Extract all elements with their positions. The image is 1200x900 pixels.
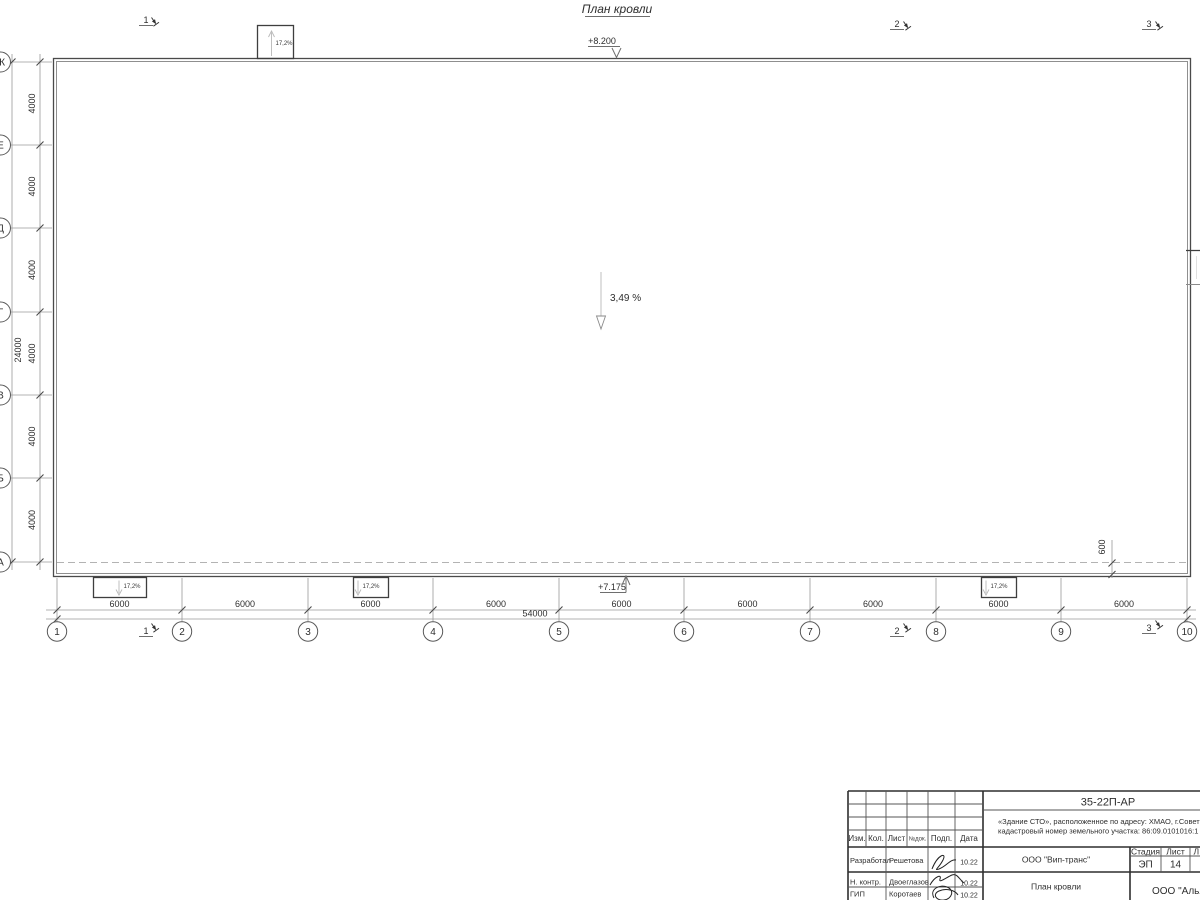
svg-text:План кровли: План кровли bbox=[1031, 882, 1081, 892]
svg-text:35-22П-АР: 35-22П-АР bbox=[1081, 797, 1135, 809]
svg-text:1: 1 bbox=[54, 627, 60, 638]
svg-text:6000: 6000 bbox=[235, 599, 255, 609]
svg-text:10.22: 10.22 bbox=[960, 893, 978, 900]
svg-text:4000: 4000 bbox=[27, 93, 37, 113]
svg-text:Коротаев: Коротаев bbox=[889, 890, 921, 899]
section-mark-2-bottom: 2 bbox=[890, 622, 911, 637]
titleblock-signer-row-3: ГИП Коротаев 10.22 bbox=[850, 886, 978, 900]
svg-text:ГИП: ГИП bbox=[850, 890, 865, 899]
svg-text:4: 4 bbox=[430, 627, 436, 638]
svg-text:600: 600 bbox=[1097, 539, 1107, 554]
svg-text:4000: 4000 bbox=[27, 176, 37, 196]
svg-text:«Здание СТО», расположенное по: «Здание СТО», расположенное по адресу: Х… bbox=[998, 817, 1200, 826]
section-mark-3-bottom: 3 bbox=[1142, 619, 1163, 634]
svg-text:2: 2 bbox=[179, 627, 185, 638]
svg-text:17,2%: 17,2% bbox=[363, 584, 381, 590]
svg-text:Лист: Лист bbox=[1166, 847, 1185, 857]
titleblock-org-cell: ООО "Вип-транс" bbox=[1022, 855, 1090, 865]
section-mark-2-top: 2 bbox=[890, 19, 911, 30]
svg-text:2: 2 bbox=[894, 626, 899, 636]
svg-text:Ж: Ж bbox=[0, 58, 6, 69]
column-dimension-lines bbox=[46, 610, 1196, 619]
titleblock-project-description: «Здание СТО», расположенное по адресу: Х… bbox=[998, 817, 1200, 836]
titleblock-doc-code: 35-22П-АР bbox=[1081, 797, 1135, 809]
svg-text:6: 6 bbox=[681, 627, 687, 638]
svg-text:7: 7 bbox=[807, 627, 813, 638]
signature-2 bbox=[930, 875, 964, 885]
svg-text:1: 1 bbox=[143, 15, 148, 25]
svg-text:4000: 4000 bbox=[27, 343, 37, 363]
svg-text:+7.175: +7.175 bbox=[598, 582, 626, 592]
titleblock-header-row: Изм. Кол. Лист №док. Подп. Дата bbox=[848, 834, 978, 843]
titleblock-org2-cell: ООО "Алья bbox=[1152, 886, 1200, 897]
svg-text:2: 2 bbox=[894, 19, 899, 29]
svg-text:14: 14 bbox=[1170, 860, 1182, 871]
svg-text:10.22: 10.22 bbox=[960, 881, 978, 888]
svg-text:Стадия: Стадия bbox=[1131, 847, 1160, 857]
elevation-mark-roof-low: +7.175 bbox=[598, 576, 630, 593]
svg-text:6000: 6000 bbox=[1114, 599, 1134, 609]
canopy-bottom-2: 17,2% bbox=[354, 578, 389, 598]
svg-text:Подп.: Подп. bbox=[931, 834, 952, 843]
svg-text:Л: Л bbox=[1194, 847, 1200, 857]
svg-text:В: В bbox=[0, 391, 4, 402]
column-total-dimension-label: 54000 bbox=[522, 609, 547, 619]
svg-text:17,2%: 17,2% bbox=[991, 584, 1009, 590]
svg-text:6000: 6000 bbox=[486, 599, 506, 609]
svg-text:3: 3 bbox=[1146, 623, 1151, 633]
canopy-bottom-3: 17,2% bbox=[982, 578, 1017, 598]
drawing-title: План кровли bbox=[582, 2, 653, 16]
svg-text:10: 10 bbox=[1181, 627, 1193, 638]
svg-text:6000: 6000 bbox=[611, 599, 631, 609]
svg-text:Решетова: Решетова bbox=[889, 856, 924, 865]
svg-text:Б: Б bbox=[0, 474, 4, 485]
svg-text:6000: 6000 bbox=[360, 599, 380, 609]
svg-text:3: 3 bbox=[305, 627, 311, 638]
canopy-bottom-1: 17,2% bbox=[94, 578, 147, 598]
roof-slope-label: 3,49 % bbox=[610, 293, 641, 304]
canopy-top: 17,2% bbox=[258, 26, 294, 59]
svg-text:Разработал: Разработал bbox=[850, 856, 891, 865]
svg-text:Изм.: Изм. bbox=[848, 834, 865, 843]
elevation-mark-roof-high: +8.200 bbox=[588, 36, 621, 58]
svg-text:Е: Е bbox=[0, 141, 4, 152]
svg-text:Кол.: Кол. bbox=[868, 834, 884, 843]
svg-text:5: 5 bbox=[556, 627, 562, 638]
svg-text:8: 8 bbox=[933, 627, 939, 638]
column-bay-dimension-labels: 6000 6000 6000 6000 6000 6000 6000 6000 … bbox=[109, 599, 1134, 609]
svg-text:6000: 6000 bbox=[988, 599, 1008, 609]
svg-text:кадастровый номер земельного у: кадастровый номер земельного участка: 86… bbox=[998, 827, 1198, 836]
titleblock-signer-row-2: Н. контр. Двоеглазов 10.22 bbox=[850, 875, 978, 888]
svg-text:+8.200: +8.200 bbox=[588, 36, 616, 46]
titleblock-signer-row-1: Разработал Решетова 10.22 bbox=[850, 855, 978, 869]
signature-1 bbox=[932, 855, 956, 869]
svg-text:ООО "Алья: ООО "Алья bbox=[1152, 886, 1200, 897]
svg-text:9: 9 bbox=[1058, 627, 1064, 638]
svg-text:Дата: Дата bbox=[960, 834, 978, 843]
svg-text:Двоеглазов: Двоеглазов bbox=[889, 878, 929, 887]
section-mark-1-top: 1 bbox=[139, 15, 159, 26]
row-total-dimension-label: 24000 bbox=[13, 337, 23, 362]
svg-text:6000: 6000 bbox=[109, 599, 129, 609]
svg-text:6000: 6000 bbox=[737, 599, 757, 609]
svg-text:1: 1 bbox=[143, 626, 148, 636]
svg-text:Лист: Лист bbox=[888, 834, 906, 843]
drawing-canvas: План кровли 4000 4000 4000 4000 4000 400… bbox=[0, 0, 1200, 900]
svg-text:4000: 4000 bbox=[27, 510, 37, 530]
svg-text:17,2%: 17,2% bbox=[124, 584, 142, 590]
section-mark-1-bottom: 1 bbox=[139, 622, 159, 637]
svg-text:№док.: №док. bbox=[909, 836, 927, 843]
row-axis-bubbles: Ж Е Д Г В Б А bbox=[0, 52, 11, 572]
svg-text:ЭП: ЭП bbox=[1138, 860, 1152, 871]
svg-text:10.22: 10.22 bbox=[960, 860, 978, 867]
svg-text:Н. контр.: Н. контр. bbox=[850, 878, 881, 887]
svg-text:4000: 4000 bbox=[27, 426, 37, 446]
titleblock-sheet-name-cell: План кровли bbox=[1031, 882, 1081, 892]
svg-text:А: А bbox=[0, 558, 4, 569]
svg-text:3: 3 bbox=[1146, 19, 1151, 29]
svg-text:4000: 4000 bbox=[27, 260, 37, 280]
svg-text:17,2%: 17,2% bbox=[276, 41, 294, 47]
building-outline bbox=[54, 59, 1191, 577]
svg-text:Д: Д bbox=[0, 224, 4, 235]
signature-3 bbox=[933, 886, 958, 900]
section-mark-3-top: 3 bbox=[1142, 19, 1163, 30]
svg-text:6000: 6000 bbox=[863, 599, 883, 609]
titleblock-stage-cells: Стадия Лист Л ЭП 14 bbox=[1131, 847, 1199, 871]
column-axis-bubbles: 1 2 3 4 5 6 7 8 9 10 bbox=[47, 622, 1196, 641]
roof-plan-sheet: План кровли 4000 4000 4000 4000 4000 400… bbox=[0, 0, 1200, 900]
svg-text:ООО "Вип-транс": ООО "Вип-транс" bbox=[1022, 855, 1090, 865]
